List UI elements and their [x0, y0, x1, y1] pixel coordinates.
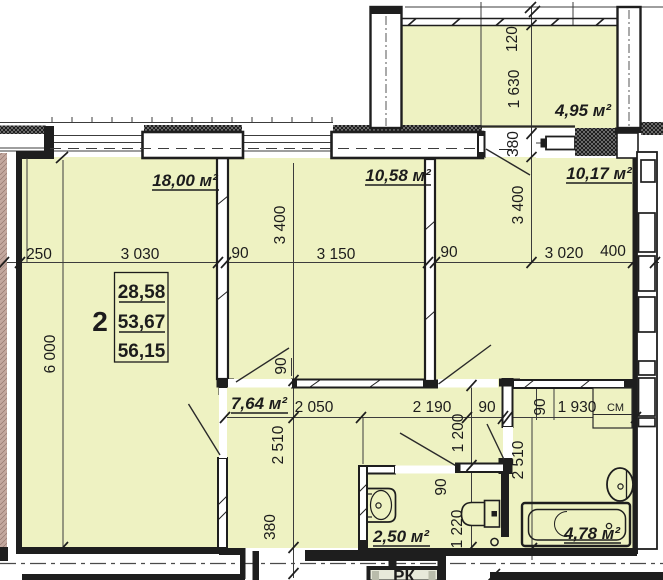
- svg-text:120: 120: [504, 26, 521, 52]
- svg-text:6 000: 6 000: [42, 334, 59, 373]
- svg-text:3 400: 3 400: [510, 185, 527, 224]
- svg-text:СМ: СМ: [607, 402, 624, 414]
- svg-text:2,50 м²: 2,50 м²: [372, 527, 430, 546]
- svg-text:250: 250: [26, 246, 52, 263]
- svg-text:2 050: 2 050: [295, 399, 334, 416]
- svg-text:3 150: 3 150: [317, 246, 356, 263]
- svg-text:90: 90: [273, 357, 290, 375]
- svg-text:3 400: 3 400: [272, 205, 289, 244]
- svg-text:53,67: 53,67: [118, 312, 166, 333]
- svg-text:18,00 м²: 18,00 м²: [152, 171, 219, 190]
- svg-text:90: 90: [532, 398, 549, 416]
- svg-text:4,95 м²: 4,95 м²: [554, 101, 612, 120]
- svg-text:90: 90: [440, 244, 458, 261]
- svg-text:2 190: 2 190: [413, 399, 452, 416]
- svg-text:2: 2: [92, 306, 108, 337]
- svg-text:РК: РК: [393, 567, 415, 580]
- svg-text:3 030: 3 030: [121, 246, 160, 263]
- svg-text:90: 90: [478, 399, 496, 416]
- svg-text:1 930: 1 930: [558, 399, 597, 416]
- svg-text:380: 380: [262, 514, 279, 540]
- svg-text:10,58 м²: 10,58 м²: [365, 166, 432, 185]
- svg-text:4,78 м²: 4,78 м²: [563, 524, 621, 543]
- svg-text:2 510: 2 510: [510, 440, 527, 479]
- svg-text:90: 90: [231, 245, 249, 262]
- svg-text:7,64 м²: 7,64 м²: [231, 394, 288, 413]
- svg-text:10,17 м²: 10,17 м²: [566, 164, 633, 183]
- svg-text:3 020: 3 020: [545, 245, 584, 262]
- svg-text:400: 400: [600, 243, 626, 260]
- svg-text:1 200: 1 200: [450, 413, 467, 452]
- svg-text:56,15: 56,15: [118, 341, 166, 362]
- svg-text:380: 380: [505, 131, 522, 157]
- svg-text:90: 90: [433, 478, 450, 496]
- svg-text:2 510: 2 510: [270, 425, 287, 464]
- svg-text:1 630: 1 630: [506, 69, 523, 108]
- svg-text:28,58: 28,58: [118, 282, 166, 303]
- svg-text:1 220: 1 220: [449, 509, 466, 548]
